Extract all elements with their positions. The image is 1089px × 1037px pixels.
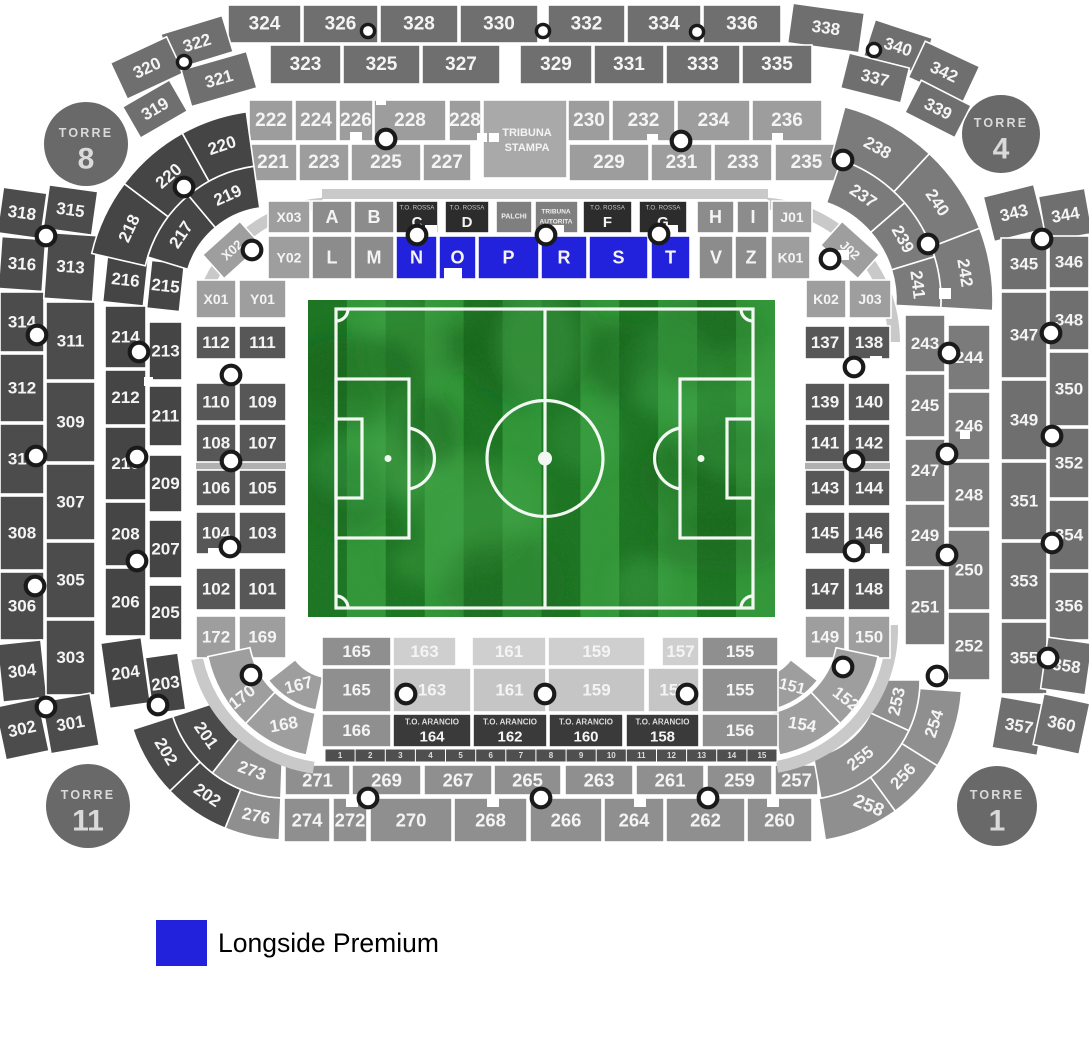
svg-text:I: I xyxy=(750,207,755,227)
svg-text:161: 161 xyxy=(495,681,523,700)
svg-text:11: 11 xyxy=(72,805,104,838)
svg-text:PALCHI: PALCHI xyxy=(501,214,527,221)
svg-text:268: 268 xyxy=(475,810,506,831)
svg-text:149: 149 xyxy=(811,628,839,647)
svg-text:334: 334 xyxy=(648,14,680,35)
svg-text:349: 349 xyxy=(1010,411,1038,430)
svg-text:223: 223 xyxy=(308,152,340,173)
svg-text:212: 212 xyxy=(111,388,139,407)
svg-text:351: 351 xyxy=(1010,492,1038,511)
svg-text:8: 8 xyxy=(549,751,554,760)
svg-text:J03: J03 xyxy=(858,291,882,307)
svg-text:165: 165 xyxy=(342,681,370,700)
svg-text:K02: K02 xyxy=(813,291,839,307)
svg-text:J01: J01 xyxy=(780,209,804,225)
svg-text:R: R xyxy=(558,248,571,268)
svg-text:165: 165 xyxy=(342,642,370,661)
svg-text:F: F xyxy=(603,214,612,231)
svg-text:328: 328 xyxy=(403,14,435,35)
svg-text:270: 270 xyxy=(396,810,427,831)
svg-text:164: 164 xyxy=(419,729,445,746)
svg-text:271: 271 xyxy=(302,770,333,791)
svg-text:105: 105 xyxy=(248,479,276,498)
svg-text:166: 166 xyxy=(342,721,370,740)
svg-text:A: A xyxy=(326,207,339,227)
svg-text:Y01: Y01 xyxy=(250,291,275,307)
svg-text:Z: Z xyxy=(746,248,757,268)
svg-text:TORRE: TORRE xyxy=(974,116,1029,130)
svg-text:215: 215 xyxy=(150,275,180,297)
svg-text:260: 260 xyxy=(764,810,795,831)
svg-text:155: 155 xyxy=(726,642,754,661)
svg-text:350: 350 xyxy=(1055,380,1083,399)
svg-text:TORRE: TORRE xyxy=(970,788,1025,802)
svg-text:TORRE: TORRE xyxy=(59,126,114,140)
svg-text:241: 241 xyxy=(906,269,928,299)
svg-text:11: 11 xyxy=(637,751,646,760)
svg-text:338: 338 xyxy=(811,17,842,40)
svg-text:247: 247 xyxy=(911,461,939,480)
svg-text:1: 1 xyxy=(338,751,343,760)
svg-text:169: 169 xyxy=(248,628,276,647)
svg-text:229: 229 xyxy=(593,152,625,173)
svg-text:7: 7 xyxy=(519,751,524,760)
svg-text:K01: K01 xyxy=(778,250,804,266)
svg-text:323: 323 xyxy=(290,54,322,75)
svg-text:204: 204 xyxy=(110,662,141,685)
svg-text:309: 309 xyxy=(56,413,84,432)
svg-text:345: 345 xyxy=(1010,255,1038,274)
svg-text:303: 303 xyxy=(56,648,84,667)
svg-text:4: 4 xyxy=(428,751,433,760)
svg-text:304: 304 xyxy=(7,660,38,682)
svg-text:157: 157 xyxy=(666,642,694,661)
svg-text:103: 103 xyxy=(248,524,276,543)
svg-text:102: 102 xyxy=(202,580,230,599)
svg-text:TRIBUNA: TRIBUNA xyxy=(541,209,571,216)
svg-text:X01: X01 xyxy=(204,291,229,307)
svg-text:B: B xyxy=(368,207,381,227)
svg-text:306: 306 xyxy=(8,597,36,616)
svg-text:111: 111 xyxy=(249,333,276,352)
svg-text:318: 318 xyxy=(7,202,38,225)
svg-text:272: 272 xyxy=(335,810,366,831)
svg-text:249: 249 xyxy=(911,526,939,545)
svg-text:234: 234 xyxy=(698,110,730,131)
svg-text:235: 235 xyxy=(791,152,823,173)
svg-text:332: 332 xyxy=(571,14,603,35)
svg-text:236: 236 xyxy=(771,110,803,131)
svg-text:172: 172 xyxy=(202,628,230,647)
svg-text:H: H xyxy=(709,207,722,227)
svg-text:160: 160 xyxy=(573,729,598,746)
svg-text:L: L xyxy=(327,248,338,268)
svg-text:T.O. ARANCIO: T.O. ARANCIO xyxy=(559,718,613,727)
svg-text:15: 15 xyxy=(757,751,766,760)
svg-text:308: 308 xyxy=(8,524,36,543)
svg-text:107: 107 xyxy=(248,434,276,453)
svg-text:8: 8 xyxy=(78,143,95,176)
svg-text:227: 227 xyxy=(431,152,463,173)
svg-text:T.O. ROSSA: T.O. ROSSA xyxy=(590,205,626,212)
svg-text:143: 143 xyxy=(811,479,839,498)
svg-text:324: 324 xyxy=(249,14,281,35)
svg-text:108: 108 xyxy=(202,434,230,453)
svg-text:250: 250 xyxy=(955,561,983,580)
svg-text:274: 274 xyxy=(292,810,324,831)
svg-text:305: 305 xyxy=(56,571,84,590)
svg-text:262: 262 xyxy=(690,810,721,831)
svg-text:159: 159 xyxy=(582,681,610,700)
svg-text:158: 158 xyxy=(650,729,675,746)
svg-text:330: 330 xyxy=(483,14,515,35)
svg-text:248: 248 xyxy=(955,486,983,505)
svg-text:144: 144 xyxy=(855,479,884,498)
svg-text:233: 233 xyxy=(727,152,759,173)
svg-text:T.O. ARANCIO: T.O. ARANCIO xyxy=(405,718,459,727)
svg-text:O: O xyxy=(450,248,464,268)
svg-text:252: 252 xyxy=(955,637,983,656)
svg-text:STAMPA: STAMPA xyxy=(505,142,550,154)
svg-text:228: 228 xyxy=(394,110,426,131)
svg-text:142: 142 xyxy=(855,434,883,453)
svg-text:222: 222 xyxy=(255,110,287,131)
svg-text:355: 355 xyxy=(1010,649,1038,668)
svg-text:163: 163 xyxy=(418,681,446,700)
svg-text:109: 109 xyxy=(248,393,276,412)
svg-text:315: 315 xyxy=(55,199,86,222)
svg-text:208: 208 xyxy=(111,525,139,544)
svg-text:257: 257 xyxy=(781,770,812,791)
svg-text:269: 269 xyxy=(371,770,402,791)
svg-text:S: S xyxy=(612,248,624,268)
svg-text:T.O. ARANCIO: T.O. ARANCIO xyxy=(483,718,537,727)
svg-text:Longside Premium: Longside Premium xyxy=(218,928,439,958)
svg-text:226: 226 xyxy=(340,110,372,131)
svg-text:346: 346 xyxy=(1055,253,1083,272)
svg-text:P: P xyxy=(502,248,514,268)
svg-text:267: 267 xyxy=(443,770,474,791)
svg-text:326: 326 xyxy=(325,14,357,35)
svg-text:146: 146 xyxy=(855,524,883,543)
svg-text:106: 106 xyxy=(202,479,230,498)
svg-text:213: 213 xyxy=(151,342,179,361)
svg-text:211: 211 xyxy=(152,407,179,426)
svg-text:245: 245 xyxy=(911,396,939,415)
svg-text:159: 159 xyxy=(582,642,610,661)
svg-text:264: 264 xyxy=(619,810,651,831)
svg-text:D: D xyxy=(462,214,473,231)
svg-text:209: 209 xyxy=(151,474,179,493)
svg-text:141: 141 xyxy=(811,434,839,453)
svg-text:9: 9 xyxy=(579,751,584,760)
svg-text:259: 259 xyxy=(724,770,755,791)
svg-text:148: 148 xyxy=(855,580,883,599)
svg-text:110: 110 xyxy=(202,393,229,412)
svg-text:329: 329 xyxy=(540,54,572,75)
svg-text:4: 4 xyxy=(993,133,1010,166)
svg-text:230: 230 xyxy=(573,110,605,131)
svg-text:X03: X03 xyxy=(277,209,302,225)
svg-text:156: 156 xyxy=(726,721,754,740)
svg-text:225: 225 xyxy=(370,152,402,173)
svg-text:145: 145 xyxy=(811,524,839,543)
svg-text:352: 352 xyxy=(1055,454,1083,473)
svg-text:356: 356 xyxy=(1055,597,1083,616)
svg-text:261: 261 xyxy=(655,770,686,791)
svg-text:336: 336 xyxy=(726,14,758,35)
svg-text:163: 163 xyxy=(410,642,438,661)
svg-text:112: 112 xyxy=(202,333,229,352)
svg-text:14: 14 xyxy=(727,751,736,760)
svg-text:13: 13 xyxy=(697,751,706,760)
svg-text:333: 333 xyxy=(687,54,719,75)
svg-text:327: 327 xyxy=(445,54,477,75)
svg-text:147: 147 xyxy=(811,580,839,599)
svg-text:206: 206 xyxy=(111,593,139,612)
svg-text:231: 231 xyxy=(666,152,698,173)
svg-text:6: 6 xyxy=(488,751,493,760)
svg-text:162: 162 xyxy=(497,729,522,746)
svg-text:316: 316 xyxy=(7,254,37,275)
svg-text:161: 161 xyxy=(495,642,523,661)
svg-text:1: 1 xyxy=(989,805,1006,838)
svg-text:325: 325 xyxy=(366,54,398,75)
svg-text:263: 263 xyxy=(584,770,615,791)
svg-text:347: 347 xyxy=(1010,326,1038,345)
svg-text:205: 205 xyxy=(151,603,179,622)
svg-text:T.O. ROSSA: T.O. ROSSA xyxy=(450,205,486,212)
svg-text:155: 155 xyxy=(726,681,754,700)
svg-text:T.O. ARANCIO: T.O. ARANCIO xyxy=(636,718,690,727)
svg-text:266: 266 xyxy=(551,810,582,831)
svg-text:221: 221 xyxy=(257,152,289,173)
svg-text:140: 140 xyxy=(855,393,883,412)
svg-text:Y02: Y02 xyxy=(277,250,302,266)
svg-text:T: T xyxy=(665,248,676,268)
svg-text:3: 3 xyxy=(398,751,403,760)
svg-text:139: 139 xyxy=(811,393,839,412)
svg-text:T.O. ROSSA: T.O. ROSSA xyxy=(646,205,682,212)
svg-text:331: 331 xyxy=(613,54,645,75)
svg-text:12: 12 xyxy=(667,751,676,760)
svg-text:353: 353 xyxy=(1010,572,1038,591)
svg-text:216: 216 xyxy=(110,269,140,291)
svg-text:207: 207 xyxy=(151,540,179,559)
svg-text:TRIBUNA: TRIBUNA xyxy=(502,127,552,139)
svg-text:T.O. ROSSA: T.O. ROSSA xyxy=(400,205,436,212)
svg-text:232: 232 xyxy=(628,110,660,131)
svg-text:5: 5 xyxy=(458,751,463,760)
svg-text:137: 137 xyxy=(811,333,839,352)
svg-text:150: 150 xyxy=(855,628,883,647)
svg-text:TORRE: TORRE xyxy=(61,788,116,802)
svg-text:224: 224 xyxy=(300,110,332,131)
svg-text:251: 251 xyxy=(911,598,939,617)
svg-text:V: V xyxy=(710,248,722,268)
svg-text:228: 228 xyxy=(449,110,481,131)
svg-text:10: 10 xyxy=(607,751,616,760)
svg-text:203: 203 xyxy=(150,672,181,695)
svg-text:313: 313 xyxy=(56,257,86,278)
svg-text:101: 101 xyxy=(248,580,276,599)
svg-text:M: M xyxy=(367,248,382,268)
svg-text:335: 335 xyxy=(761,54,793,75)
svg-text:311: 311 xyxy=(57,332,84,351)
svg-text:307: 307 xyxy=(56,493,84,512)
svg-text:2: 2 xyxy=(368,751,373,760)
svg-text:312: 312 xyxy=(8,379,36,398)
svg-text:138: 138 xyxy=(855,333,883,352)
svg-text:243: 243 xyxy=(911,334,939,353)
svg-text:N: N xyxy=(410,248,423,268)
